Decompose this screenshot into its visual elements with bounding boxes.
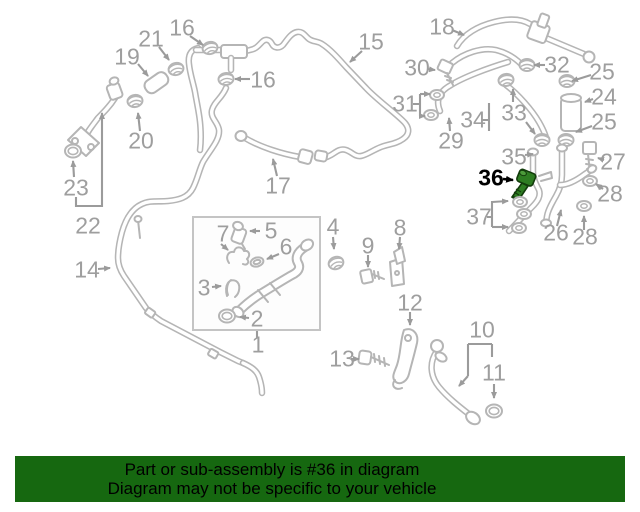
callout-31: 31: [392, 91, 418, 118]
callout-6: 6: [280, 234, 293, 261]
callout-25: 25: [589, 59, 615, 86]
callout-21: 21: [138, 26, 164, 53]
callout-16: 16: [250, 67, 276, 94]
callout-30: 30: [404, 55, 430, 82]
bolt-9: [360, 269, 384, 284]
highlighted-bolt: [512, 168, 537, 201]
callout-27: 27: [600, 149, 626, 176]
hose-17-fittings: [236, 131, 328, 165]
tank-24: [561, 94, 581, 131]
callout-2: 2: [251, 306, 264, 333]
callout-23: 23: [63, 175, 89, 202]
callout-33: 33: [501, 100, 527, 127]
callout-34: 34: [460, 107, 486, 134]
callout-25: 25: [591, 109, 617, 136]
banner-line2: Diagram may not be specific to your vehi…: [15, 479, 529, 498]
callout-13: 13: [329, 346, 355, 373]
callout-8: 8: [394, 215, 407, 242]
callout-19: 19: [114, 44, 140, 71]
callout-10: 10: [469, 317, 495, 344]
callout-7: 7: [217, 221, 230, 248]
callout-4: 4: [327, 214, 340, 241]
bracket-12: [393, 329, 417, 389]
callout-18: 18: [429, 14, 455, 41]
bolt-13: [358, 350, 389, 366]
callout-11: 11: [482, 360, 506, 387]
callout-15: 15: [358, 29, 384, 56]
callout-12: 12: [397, 290, 423, 317]
callout-32: 32: [544, 52, 570, 79]
bolt-30: [437, 59, 453, 85]
callout-9: 9: [362, 233, 375, 260]
callout-14: 14: [74, 257, 100, 284]
callout-3: 3: [198, 275, 211, 302]
callout-36: 36: [478, 165, 504, 192]
callout-1: 1: [252, 332, 265, 359]
callout-26: 26: [543, 220, 569, 247]
callout-22: 22: [75, 213, 101, 240]
parts-diagram-page: 1234567891011121314151616171819202122232…: [0, 0, 640, 512]
callout-28: 28: [572, 224, 598, 251]
banner-line1: Part or sub-assembly is #36 in diagram: [15, 460, 529, 479]
callout-5: 5: [265, 218, 278, 245]
callout-24: 24: [591, 84, 617, 111]
callout-28: 28: [597, 181, 623, 208]
callout-17: 17: [265, 173, 291, 200]
highlight-arrow: [503, 179, 513, 180]
callout-20: 20: [128, 128, 154, 155]
callout-37: 37: [466, 204, 492, 231]
callout-16: 16: [169, 15, 195, 42]
callout-35: 35: [501, 144, 527, 171]
diagram-note-banner: Part or sub-assembly is #36 in diagram D…: [15, 456, 625, 502]
bracket-8: [390, 247, 405, 286]
